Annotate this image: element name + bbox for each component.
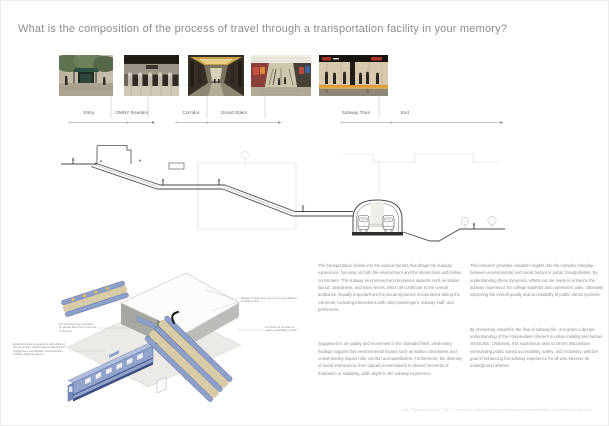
photo-corridor — [188, 55, 244, 96]
photo-entry — [59, 55, 113, 96]
essay-paragraph: By immersing oneself in the flow of subw… — [470, 326, 606, 370]
page-title: What is the composition of the process o… — [18, 23, 578, 35]
photo-subway-train — [319, 55, 388, 96]
annotation-engagement: Expand/improve engagement with efficienc… — [13, 343, 69, 357]
stage-label-subway-train: Subway Train — [331, 110, 381, 115]
stage-label-exit: Exit — [390, 110, 420, 115]
citation-footnote: Web. "Standard Well 42." 2012. E-posted,… — [336, 408, 593, 412]
annotation-skylight: Skylight to draw open air in to see how … — [241, 297, 298, 304]
annotation-accessibility: Promotion of purpose for easier accessib… — [265, 326, 301, 333]
photo-omny-readers — [124, 55, 179, 96]
essay-column-1: The transportation delves into the vario… — [318, 262, 466, 404]
stage-label-grand-stairs: Grand Stairs — [211, 110, 257, 115]
stage-label-omny-readers: OMNY Readers — [102, 110, 162, 115]
essay-paragraph: Suggested in air quality and movement in… — [318, 340, 466, 377]
section-diagram — [41, 133, 561, 259]
stage-label-corridor: Corridor — [171, 110, 211, 115]
photo-grand-stairs — [251, 55, 311, 96]
corridor-photo-illustration — [188, 55, 244, 96]
grand-stairs-photo-illustration — [251, 55, 311, 96]
entry-photo-illustration — [59, 55, 113, 96]
subway-train-photo-illustration — [319, 55, 388, 96]
essay-paragraph: The transportation delves into the vario… — [318, 262, 466, 313]
omny-photo-illustration — [124, 55, 179, 96]
presentation-board: What is the composition of the process o… — [0, 0, 609, 426]
axonometric-diagram — [9, 259, 309, 417]
annotation-circulation: Get and keep way circulation for people … — [59, 323, 97, 333]
essay-paragraph: This research provides valuable insights… — [470, 262, 606, 299]
essay-column-2: This research provides valuable insights… — [470, 262, 606, 397]
